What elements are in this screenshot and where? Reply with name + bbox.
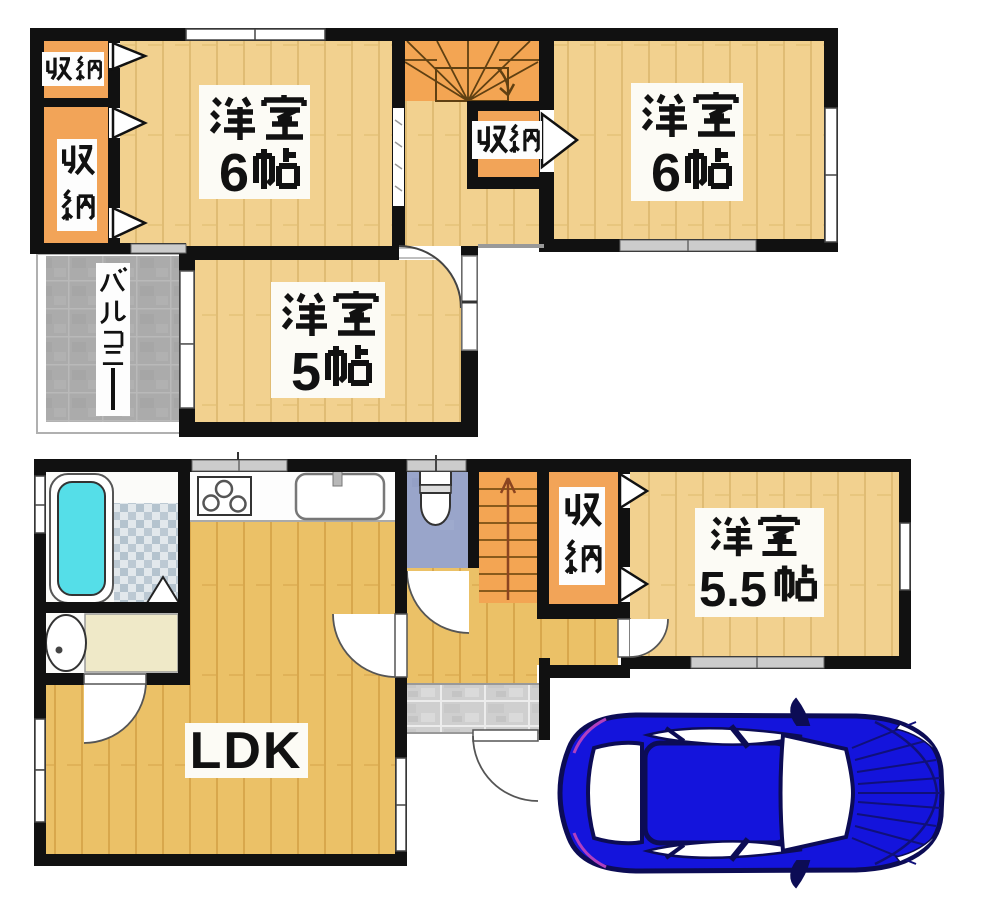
svg-text:5: 5 (291, 342, 321, 402)
svg-text:6: 6 (219, 143, 249, 203)
svg-text:5.5: 5.5 (699, 563, 767, 617)
svg-text:LDK: LDK (190, 722, 303, 780)
svg-text:6: 6 (651, 143, 681, 203)
